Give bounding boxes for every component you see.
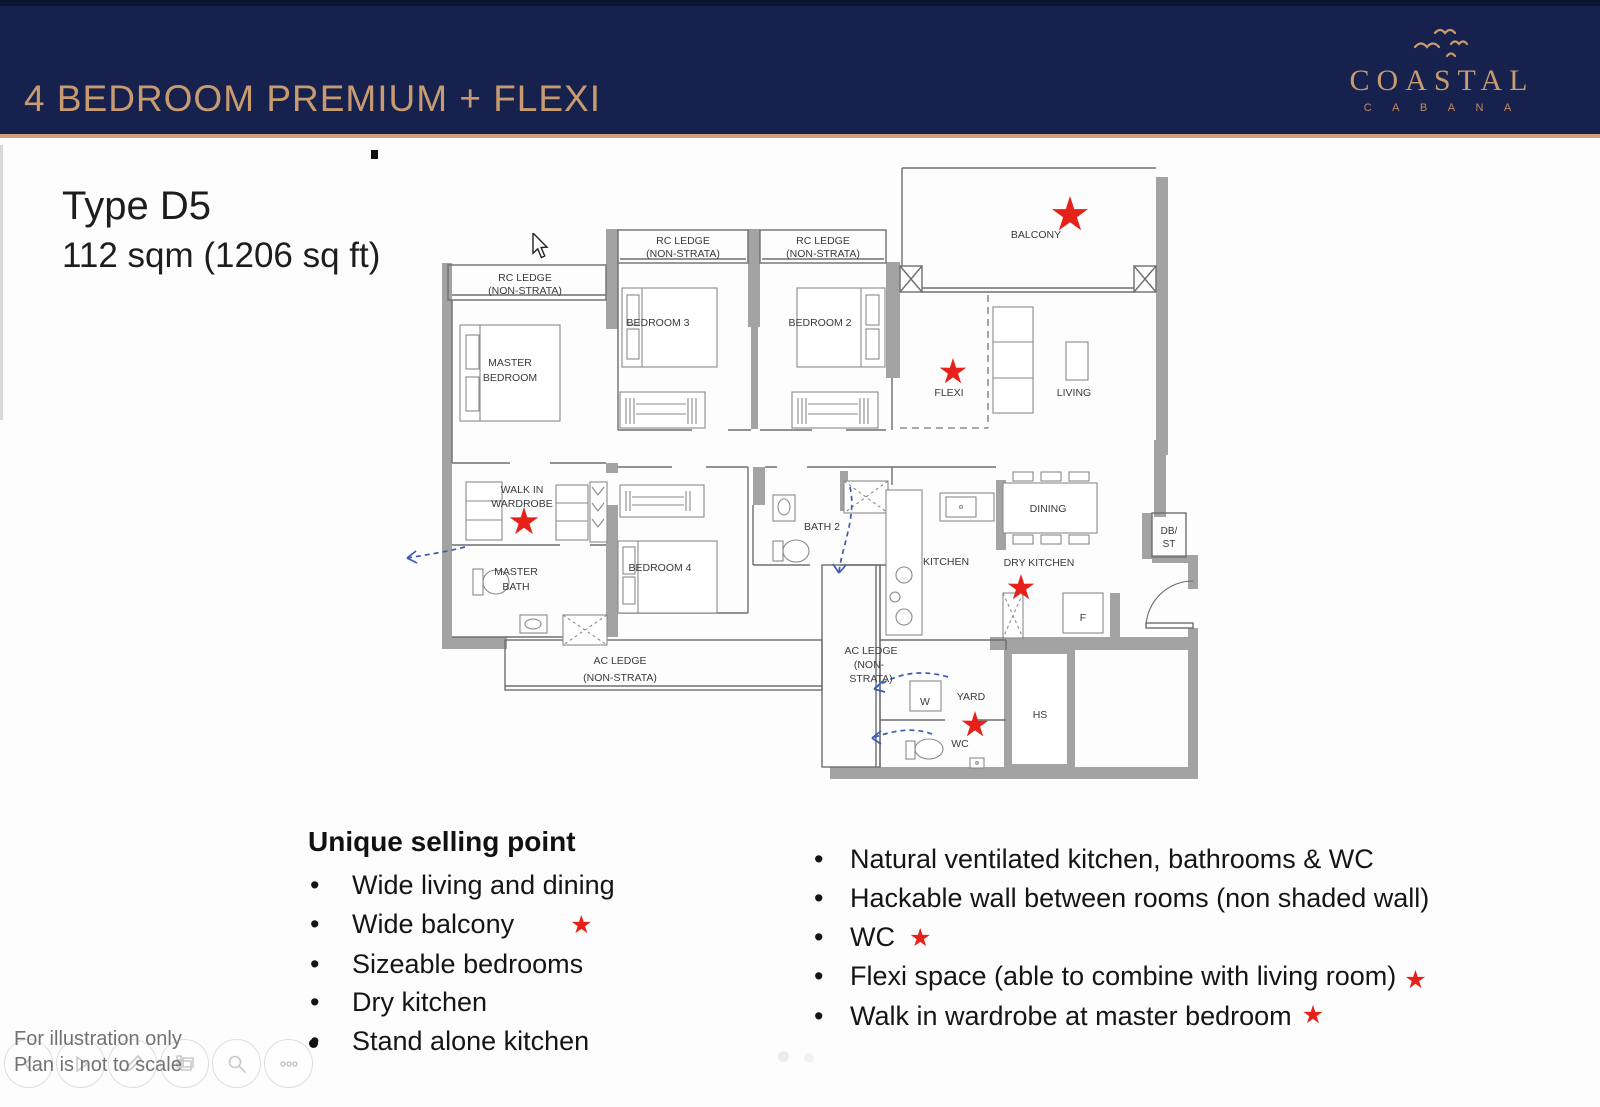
- star-icon: [962, 711, 989, 736]
- usp-heading: Unique selling point: [308, 826, 788, 858]
- svg-text:WALK IN: WALK IN: [501, 484, 544, 496]
- star-icon: ★: [1302, 1001, 1324, 1029]
- svg-text:F: F: [1080, 612, 1086, 624]
- toolbar-zoom-button[interactable]: [212, 1039, 261, 1088]
- svg-text:MASTER: MASTER: [488, 357, 532, 369]
- magnifier-icon: [225, 1052, 249, 1076]
- usp-section: Unique selling point Wide living and din…: [308, 826, 788, 1061]
- star-icon: [1052, 196, 1088, 230]
- slide-dot[interactable]: [804, 1053, 814, 1063]
- svg-text:RC LEDGE: RC LEDGE: [796, 235, 850, 247]
- svg-text:(NON-STRATA): (NON-STRATA): [488, 285, 562, 297]
- star-icon: ★: [909, 924, 931, 952]
- features-section: Natural ventilated kitchen, bathrooms & …: [812, 840, 1532, 1037]
- svg-text:(NON-STRATA): (NON-STRATA): [583, 672, 657, 684]
- svg-text:HS: HS: [1033, 709, 1048, 721]
- flexi-dashed-boundary: [900, 295, 988, 428]
- feature-item: Walk in wardrobe at master bedroom★: [812, 997, 1532, 1037]
- slide-title: 4 BEDROOM PREMIUM + FLEXI: [24, 78, 601, 120]
- star-icon: ★: [1404, 966, 1426, 994]
- svg-text:(NON-STRATA): (NON-STRATA): [646, 248, 720, 260]
- feature-item: Hackable wall between rooms (non shaded …: [812, 879, 1532, 918]
- usp-item: Sizeable bedrooms: [308, 945, 788, 984]
- star-icon: ★: [570, 911, 592, 939]
- header-bar: 4 BEDROOM PREMIUM + FLEXI COASTAL C A B …: [0, 0, 1600, 138]
- svg-text:BATH 2: BATH 2: [804, 521, 840, 533]
- svg-text:BATH: BATH: [502, 581, 529, 593]
- svg-text:(NON-STRATA): (NON-STRATA): [786, 248, 860, 260]
- svg-text:DINING: DINING: [1030, 503, 1067, 515]
- svg-text:BEDROOM 2: BEDROOM 2: [788, 317, 851, 329]
- feature-item: Flexi space (able to combine with living…: [812, 957, 1532, 997]
- more-dots-icon: [277, 1052, 301, 1076]
- svg-text:MASTER: MASTER: [494, 566, 538, 578]
- disclaimer-note: For illustration only Plan is not to sca…: [14, 1026, 182, 1078]
- usp-item: Dry kitchen: [308, 983, 788, 1022]
- floor-plan: RC LEDGE (NON-STRATA) RC LEDGE (NON-STRA…: [440, 145, 1200, 780]
- svg-text:BEDROOM 3: BEDROOM 3: [626, 317, 689, 329]
- feature-item: WC★: [812, 918, 1532, 958]
- svg-text:ST: ST: [1163, 539, 1176, 550]
- svg-text:(NON-: (NON-: [854, 659, 885, 671]
- svg-text:BALCONY: BALCONY: [1011, 229, 1061, 241]
- svg-text:BEDROOM: BEDROOM: [483, 372, 537, 384]
- svg-text:RC LEDGE: RC LEDGE: [498, 272, 552, 284]
- cursor-icon: [528, 233, 552, 261]
- brand-logo: COASTAL C A B A N A: [1342, 20, 1542, 114]
- svg-text:KITCHEN: KITCHEN: [923, 556, 969, 568]
- svg-text:FLEXI: FLEXI: [934, 387, 963, 399]
- unit-area-text: 112 sqm (1206 sq ft): [62, 236, 380, 276]
- svg-text:WARDROBE: WARDROBE: [491, 498, 552, 510]
- svg-text:BEDROOM 4: BEDROOM 4: [628, 562, 691, 574]
- svg-text:WC: WC: [951, 738, 969, 750]
- toolbar-more-button[interactable]: [264, 1039, 313, 1088]
- usp-item: Wide living and dining: [308, 866, 788, 905]
- slide-dot[interactable]: [778, 1051, 789, 1062]
- slide: 4 BEDROOM PREMIUM + FLEXI COASTAL C A B …: [0, 0, 1600, 1107]
- usp-item: Stand alone kitchen: [308, 1022, 788, 1061]
- birds-icon: [1407, 20, 1477, 62]
- star-icon: [510, 507, 539, 534]
- svg-text:AC LEDGE: AC LEDGE: [844, 645, 897, 657]
- svg-text:RC LEDGE: RC LEDGE: [656, 235, 710, 247]
- svg-text:DB/: DB/: [1161, 526, 1178, 537]
- logo-subname: C A B A N A: [1342, 102, 1542, 114]
- svg-text:YARD: YARD: [957, 691, 986, 703]
- star-icon: [940, 358, 967, 383]
- logo-name: COASTAL: [1342, 64, 1542, 98]
- disclaimer-line1: For illustration only: [14, 1026, 182, 1052]
- feature-item: Natural ventilated kitchen, bathrooms & …: [812, 840, 1532, 879]
- stray-mark: [371, 150, 378, 159]
- left-edge-shadow: [0, 145, 3, 420]
- usp-item: Wide balcony★: [308, 905, 788, 945]
- unit-type-title: Type D5: [62, 184, 211, 229]
- disclaimer-line2: Plan is not to scale: [14, 1052, 182, 1078]
- svg-text:W: W: [920, 696, 930, 708]
- svg-text:LIVING: LIVING: [1057, 387, 1091, 399]
- svg-text:AC LEDGE: AC LEDGE: [593, 655, 646, 667]
- svg-text:DRY KITCHEN: DRY KITCHEN: [1004, 557, 1075, 569]
- svg-text:STRATA): STRATA): [849, 673, 892, 685]
